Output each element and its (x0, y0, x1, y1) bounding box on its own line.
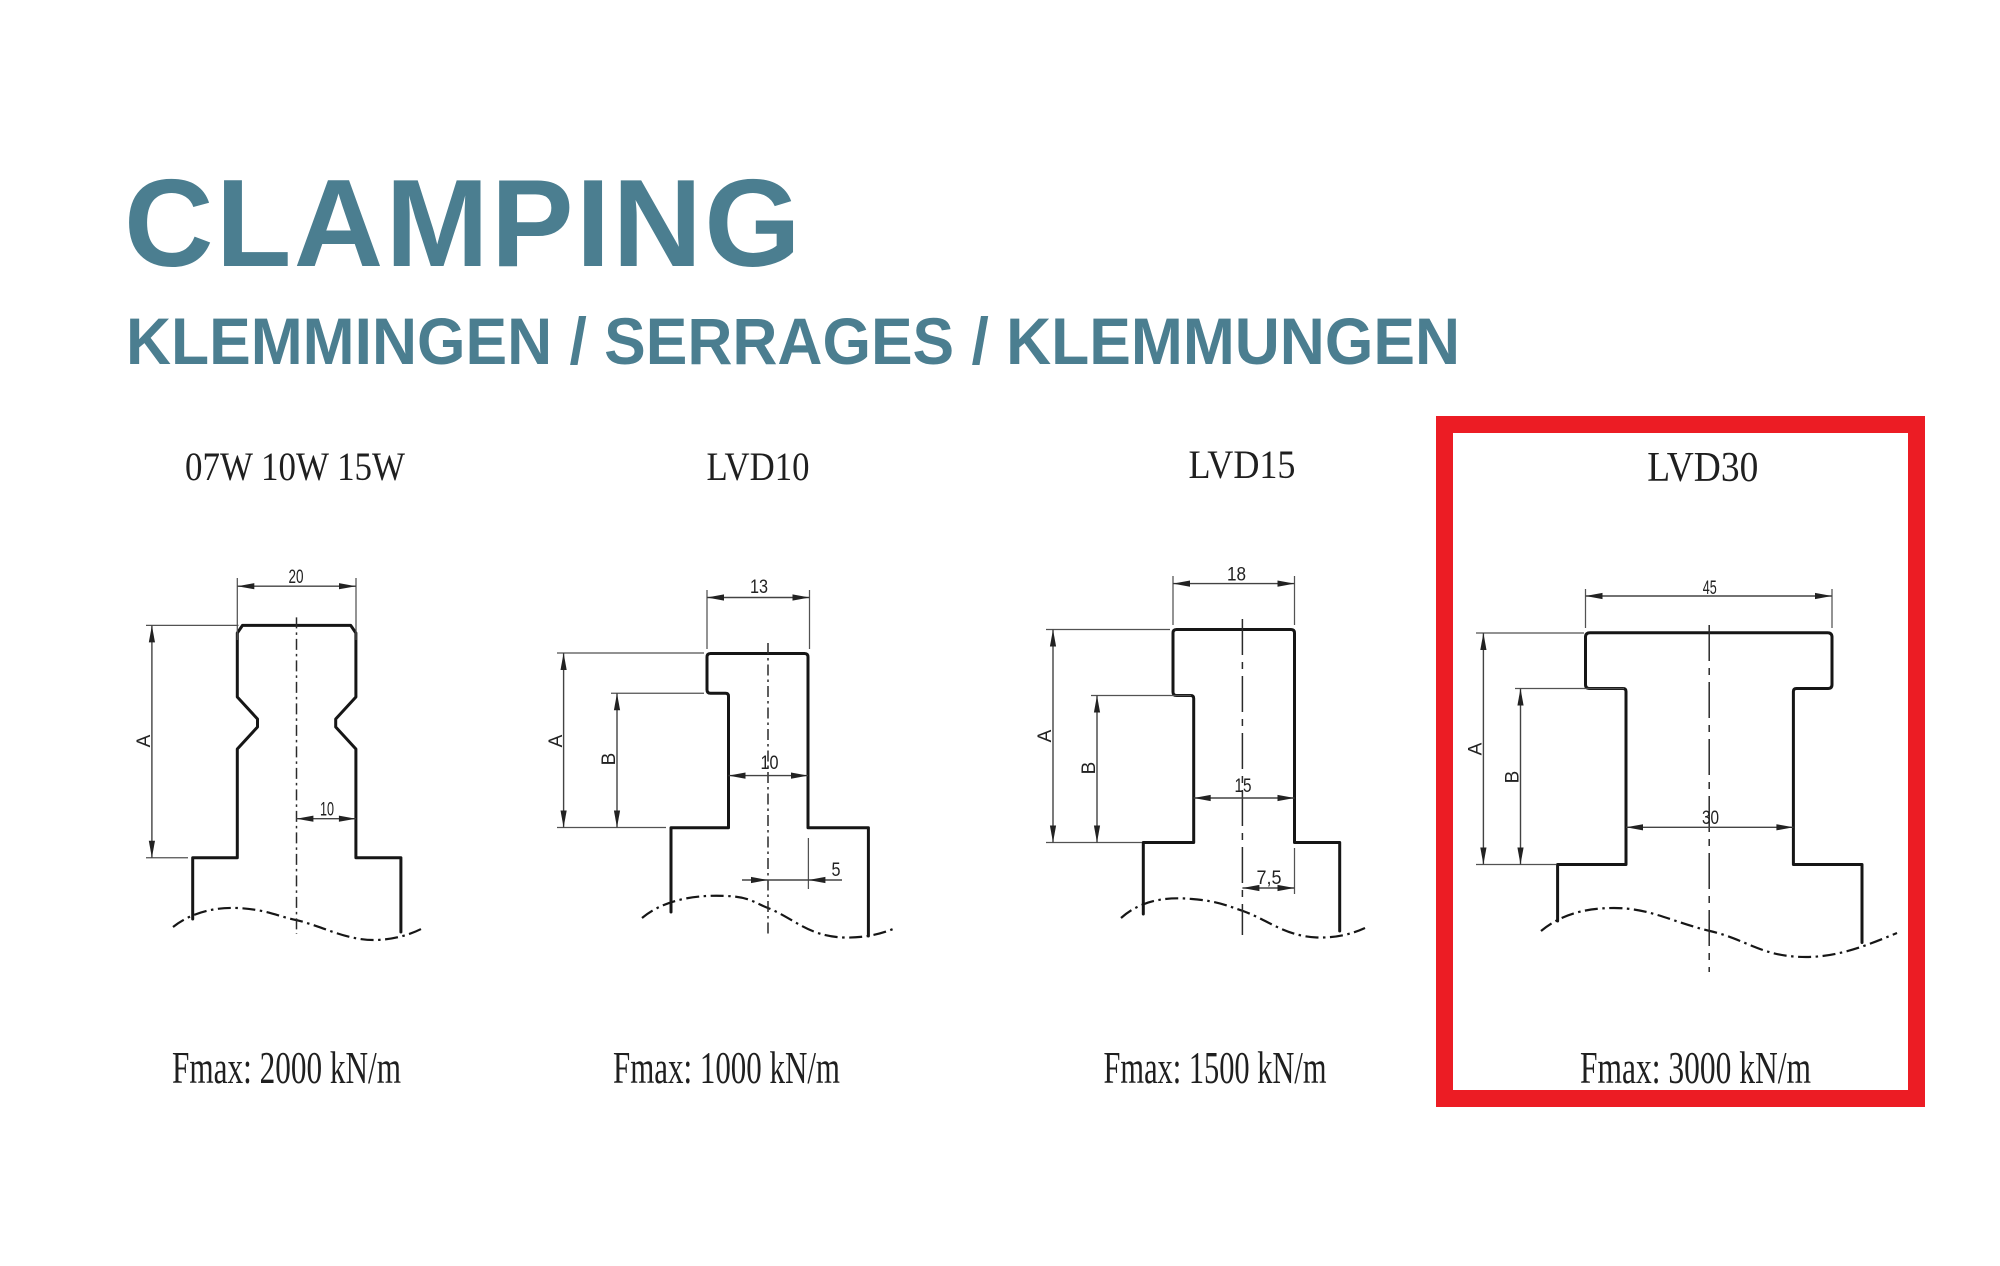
svg-text:LVD15: LVD15 (1189, 442, 1296, 487)
svg-text:LVD30: LVD30 (1647, 445, 1758, 491)
svg-text:10: 10 (320, 800, 334, 821)
svg-text:Fmax: 3000 kN/m: Fmax: 3000 kN/m (1580, 1042, 1811, 1093)
svg-text:Fmax: 1500 kN/m: Fmax: 1500 kN/m (1104, 1042, 1327, 1093)
svg-text:20: 20 (289, 567, 304, 588)
svg-text:LVD10: LVD10 (707, 444, 810, 489)
svg-text:A: A (1035, 729, 1056, 742)
svg-text:B: B (1079, 762, 1100, 775)
svg-text:A: A (134, 734, 155, 747)
svg-text:B: B (1503, 771, 1524, 784)
svg-text:A: A (1466, 742, 1487, 755)
svg-text:A: A (546, 734, 567, 747)
svg-text:5: 5 (832, 860, 841, 881)
svg-text:18: 18 (1227, 565, 1246, 586)
svg-text:KLEMMINGEN / SERRAGES / KLEMMU: KLEMMINGEN / SERRAGES / KLEMMUNGEN (126, 304, 1460, 378)
svg-text:30: 30 (1702, 808, 1719, 829)
svg-text:CLAMPING: CLAMPING (124, 155, 803, 293)
svg-text:13: 13 (750, 577, 768, 598)
svg-text:45: 45 (1703, 578, 1717, 599)
svg-text:7,5: 7,5 (1257, 868, 1282, 889)
svg-text:15: 15 (1235, 776, 1252, 797)
svg-text:Fmax: 1000 kN/m: Fmax: 1000 kN/m (613, 1042, 840, 1093)
svg-text:07W 10W 15W: 07W 10W 15W (185, 444, 405, 489)
svg-text:Fmax: 2000 kN/m: Fmax: 2000 kN/m (172, 1042, 401, 1093)
svg-text:10: 10 (761, 753, 779, 774)
svg-text:B: B (599, 753, 620, 766)
